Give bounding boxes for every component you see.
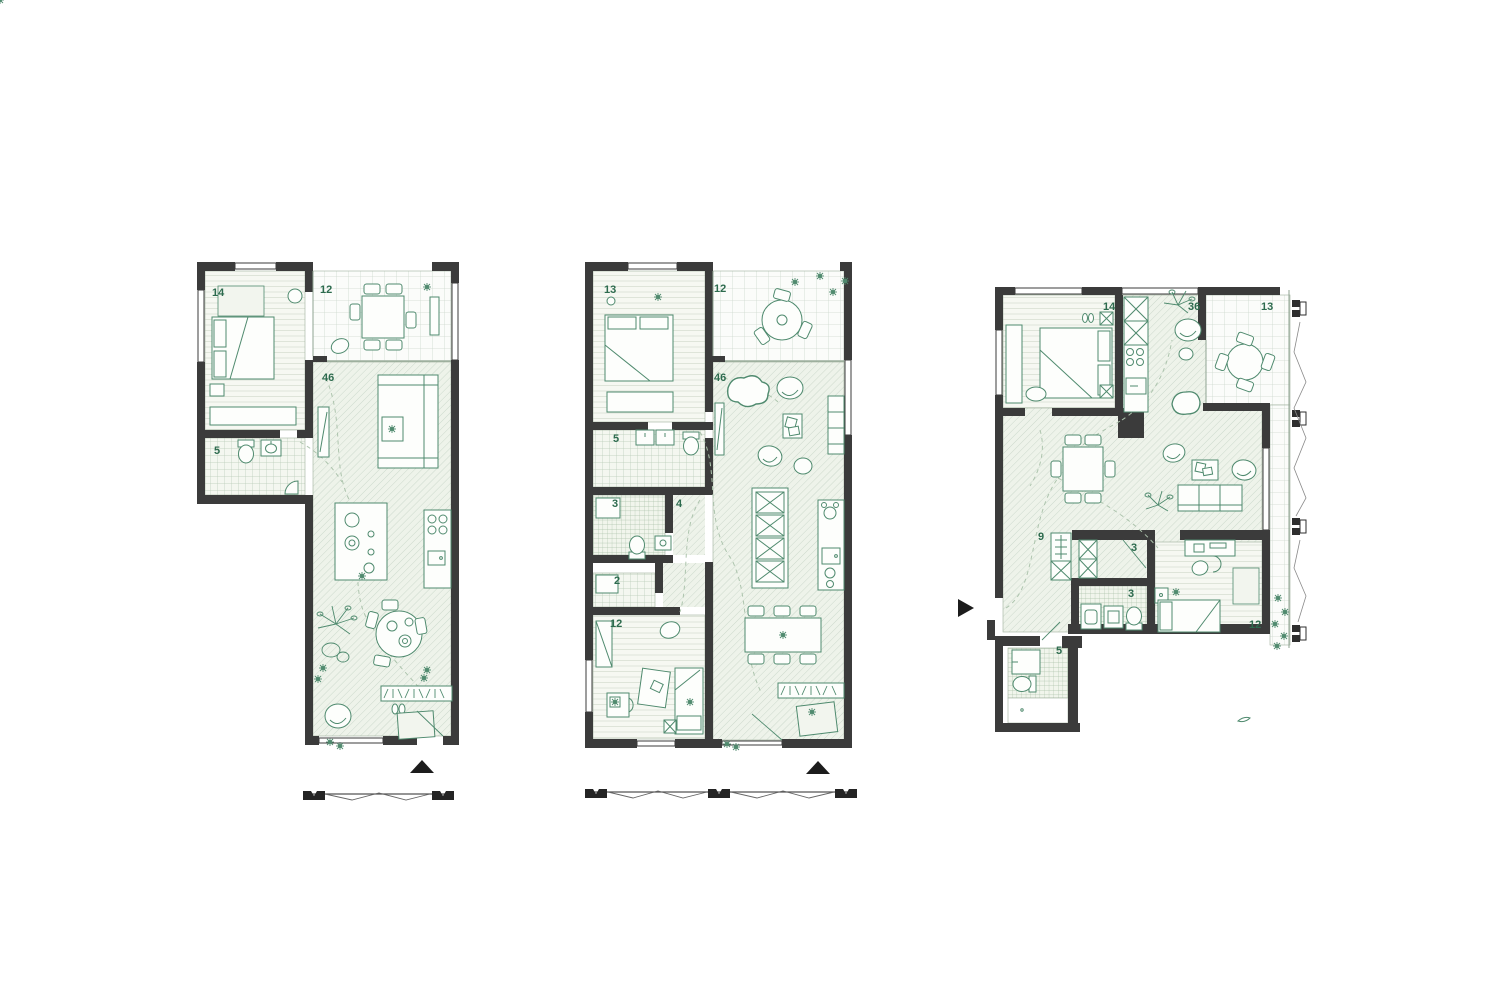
corridor-floor [663,563,705,607]
bench [210,407,296,425]
section-marker-icon [432,791,454,800]
room-label: 36 [1188,301,1200,313]
rug [218,286,264,316]
room-label: 13 [1261,301,1273,313]
balcony-strip-floor [1270,405,1290,645]
shoes [392,704,398,714]
kitchen-strip [1124,297,1148,412]
lamp [288,289,302,303]
planter [430,297,439,335]
balcony-supports [1292,300,1306,642]
bathroom3-fixtures [1081,604,1142,630]
rug-entry [397,711,435,739]
room-label: 12 [610,618,622,630]
section-line [585,789,857,798]
room-label: 3 [612,498,618,510]
room-label: 46 [322,372,334,384]
room-label: 12 [1249,619,1261,631]
architectural-sheet: 14 12 46 5 [0,0,1500,1000]
bench [607,392,673,412]
room-label: 5 [1056,645,1062,657]
sofa [378,375,438,468]
room-label: 12 [320,284,332,296]
kitchen-counter [818,500,844,590]
beanbag [1026,387,1046,401]
tv-board [318,407,329,457]
section-marker-icon [303,791,325,800]
bathroom5-dry [1008,698,1068,723]
wardrobe [381,686,452,701]
north-arrow-icon [806,761,830,774]
floor-plan-left: 14 12 46 5 [197,262,459,800]
rug-entry [796,702,837,736]
room-label: 5 [613,433,619,445]
nightstand [210,384,224,396]
room-label: 2 [614,575,620,587]
rug [1233,568,1259,604]
balcony-bracket-icon [1292,410,1306,427]
section-line [303,791,454,800]
room-label: 3 [1128,588,1134,600]
room-label: 12 [714,283,726,295]
section-marker-icon [708,789,730,798]
kitchen-counter [424,510,451,588]
room-label: 4 [676,498,683,510]
room-label: 5 [214,445,220,457]
north-arrow-icon [410,760,434,773]
tv-unit [828,396,844,454]
pen-mark [1238,717,1250,721]
lamp [607,297,615,305]
floor-plans-drawing: 14 12 46 5 [0,0,1500,1000]
dining-table [745,606,821,664]
kitchen-island [752,488,788,588]
bed [605,315,673,381]
room-label: 3 [1131,542,1137,554]
wardrobe [778,683,844,698]
balcony-bracket-icon [1292,518,1306,535]
balcony-bracket-icon [1292,625,1306,642]
room-label: 14 [212,287,225,299]
room-label: 9 [1038,531,1044,543]
slipper [1083,314,1088,323]
entry-arrow-icon [958,599,974,617]
side-table [783,414,802,438]
section-marker-icon [835,789,857,798]
bed [212,317,274,379]
room-label: 46 [714,372,726,384]
room-label: 14 [1103,301,1116,313]
mirror [715,403,724,455]
closet [1006,325,1022,403]
room-label: 13 [604,284,616,296]
balcony-bracket-icon [1292,300,1306,317]
kitchen-island [335,503,387,580]
floor-plan-middle: 13 12 46 5 3 4 2 12 [585,262,857,798]
pouf [325,704,351,728]
section-marker-icon [585,789,607,798]
